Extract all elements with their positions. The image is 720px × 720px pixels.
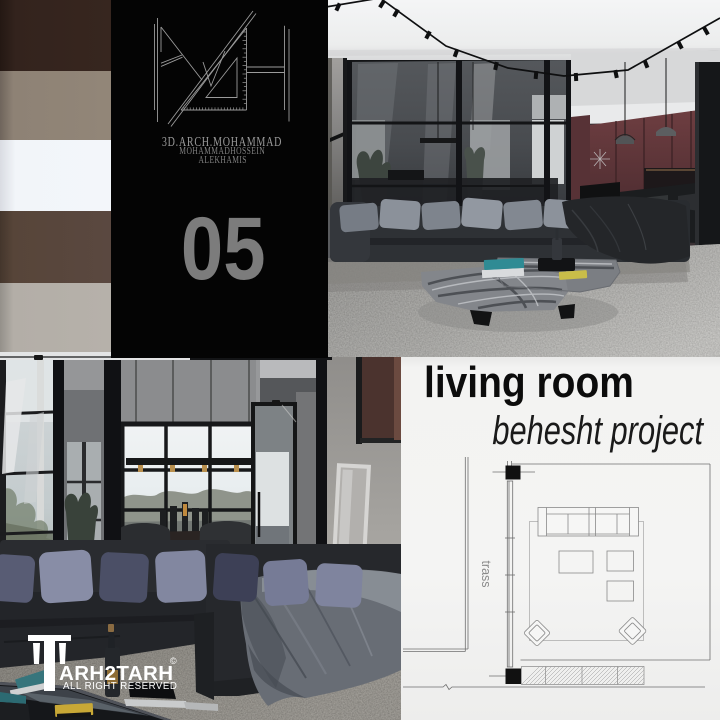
svg-text:trass: trass <box>479 560 493 587</box>
svg-text:©: © <box>170 656 177 666</box>
svg-text:ALL RIGHT RESERVED: ALL RIGHT RESERVED <box>63 681 177 692</box>
